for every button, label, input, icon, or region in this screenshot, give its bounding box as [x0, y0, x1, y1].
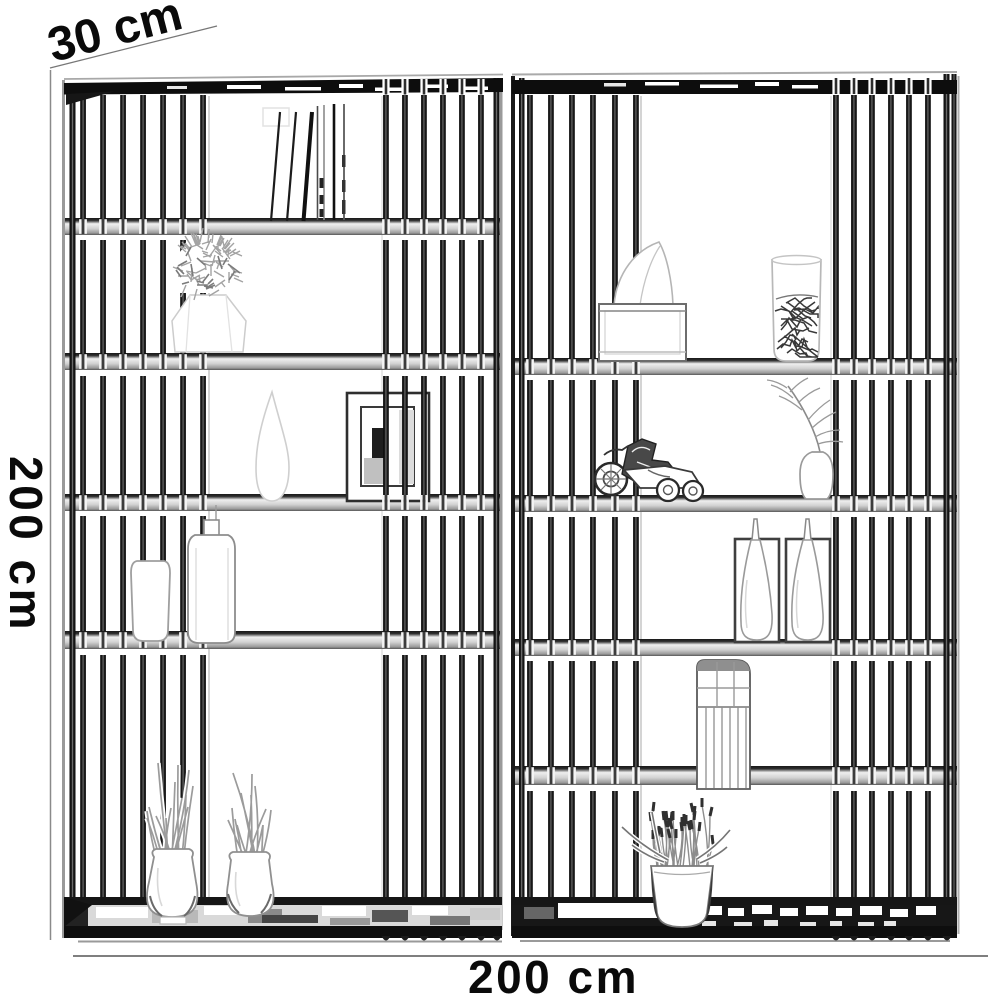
svg-text:200 cm: 200 cm [468, 951, 639, 1000]
svg-text:200 cm: 200 cm [0, 456, 52, 633]
